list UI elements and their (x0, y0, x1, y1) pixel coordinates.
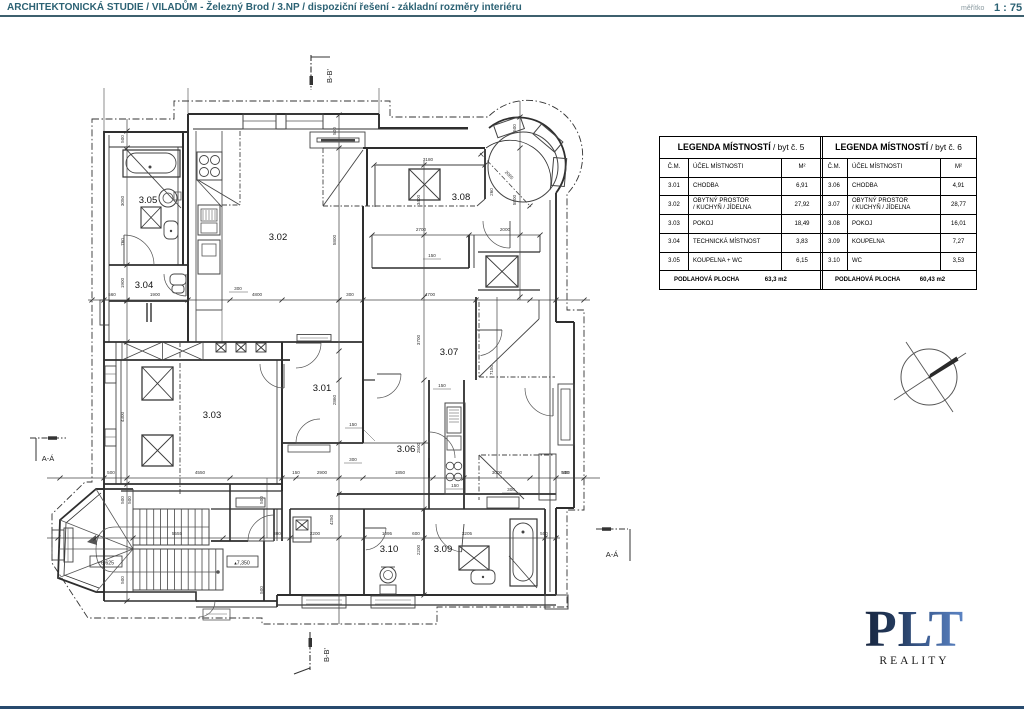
svg-text:3700: 3700 (416, 334, 421, 345)
svg-text:1900: 1900 (120, 277, 125, 288)
svg-text:A-Á: A-Á (606, 550, 619, 559)
svg-text:2900: 2900 (317, 470, 328, 475)
svg-text:500: 500 (512, 124, 517, 132)
svg-text:3.10: 3.10 (380, 544, 399, 555)
svg-text:150: 150 (438, 383, 446, 388)
svg-text:2065: 2065 (504, 170, 515, 181)
svg-text:300: 300 (346, 292, 354, 297)
svg-text:500: 500 (107, 470, 115, 475)
svg-text:300: 300 (234, 286, 242, 291)
svg-text:150: 150 (349, 422, 357, 427)
svg-text:4800: 4800 (252, 292, 263, 297)
svg-text:500: 500 (540, 531, 548, 536)
svg-text:2000: 2000 (500, 227, 511, 232)
svg-text:4250: 4250 (329, 514, 334, 525)
svg-text:2700: 2700 (416, 227, 427, 232)
svg-text:3.03: 3.03 (203, 410, 222, 421)
svg-text:2500: 2500 (416, 442, 421, 453)
svg-text:500: 500 (259, 496, 264, 504)
svg-text:3.07: 3.07 (440, 347, 459, 358)
svg-text:B-B': B-B' (325, 68, 334, 83)
svg-text:−6,625: −6,625 (98, 561, 114, 567)
svg-text:500: 500 (120, 135, 125, 143)
svg-text:7150: 7150 (489, 364, 494, 375)
svg-text:500: 500 (120, 576, 125, 584)
svg-text:1850: 1850 (395, 470, 406, 475)
svg-text:300: 300 (507, 487, 515, 492)
svg-text:5555: 5555 (172, 531, 183, 536)
svg-text:260: 260 (489, 188, 494, 196)
svg-text:4300: 4300 (120, 411, 125, 422)
svg-text:5800: 5800 (332, 234, 337, 245)
svg-text:3400: 3400 (416, 194, 421, 205)
svg-text:B-B': B-B' (322, 647, 331, 662)
svg-text:500: 500 (259, 586, 264, 594)
svg-text:3.05: 3.05 (139, 195, 158, 206)
svg-text:3.06: 3.06 (397, 444, 416, 455)
svg-text:500: 500 (332, 127, 337, 135)
svg-text:3.04: 3.04 (135, 280, 154, 291)
svg-text:760: 760 (120, 238, 125, 246)
svg-text:560: 560 (108, 292, 116, 297)
svg-text:500: 500 (120, 496, 125, 504)
svg-text:2860: 2860 (332, 394, 337, 405)
svg-text:1900: 1900 (150, 292, 161, 297)
svg-text:500: 500 (562, 470, 570, 475)
svg-text:1095: 1095 (382, 531, 393, 536)
svg-text:150: 150 (292, 470, 300, 475)
svg-text:300: 300 (349, 457, 357, 462)
svg-text:3.08: 3.08 (452, 192, 471, 203)
svg-text:3205: 3205 (462, 531, 473, 536)
svg-text:3.02: 3.02 (269, 232, 288, 243)
svg-text:5800: 5800 (512, 194, 517, 205)
svg-text:3180: 3180 (423, 157, 434, 162)
svg-text:300: 300 (273, 531, 281, 536)
svg-text:▴7,350: ▴7,350 (234, 561, 250, 567)
svg-text:4550: 4550 (195, 470, 206, 475)
svg-text:150: 150 (428, 253, 436, 258)
svg-text:3.01: 3.01 (313, 383, 332, 394)
svg-text:3050: 3050 (120, 195, 125, 206)
svg-text:2200: 2200 (310, 531, 321, 536)
svg-text:3.09: 3.09 (434, 544, 453, 555)
svg-text:500: 500 (127, 496, 132, 504)
svg-text:150: 150 (451, 483, 459, 488)
svg-text:600: 600 (412, 531, 420, 536)
svg-text:A-Á: A-Á (42, 454, 55, 463)
svg-text:2200: 2200 (416, 544, 421, 555)
